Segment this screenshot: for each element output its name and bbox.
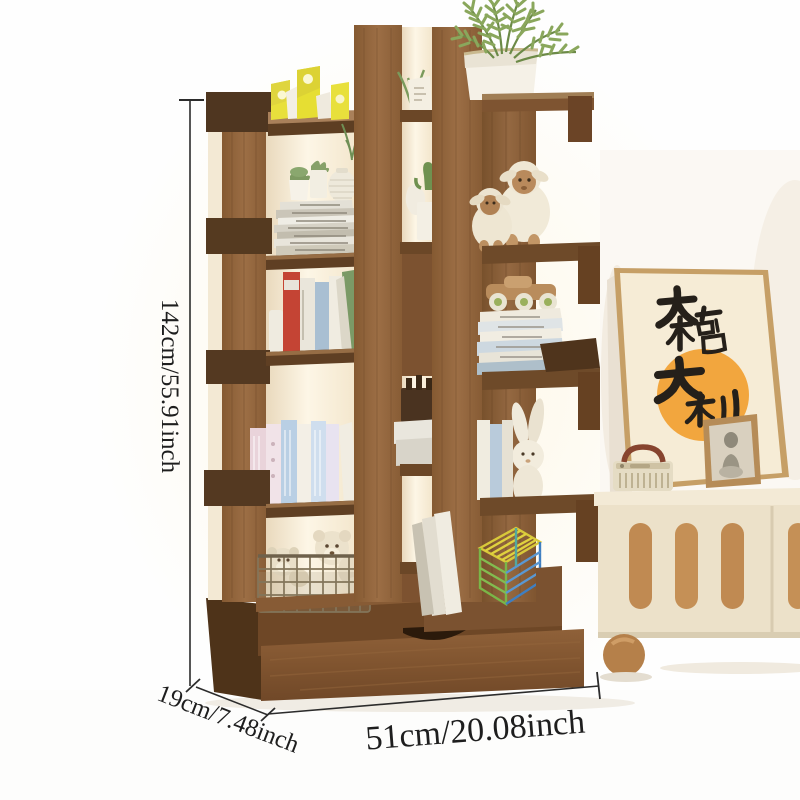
svg-text:142cm/55.91inch: 142cm/55.91inch (156, 299, 183, 474)
